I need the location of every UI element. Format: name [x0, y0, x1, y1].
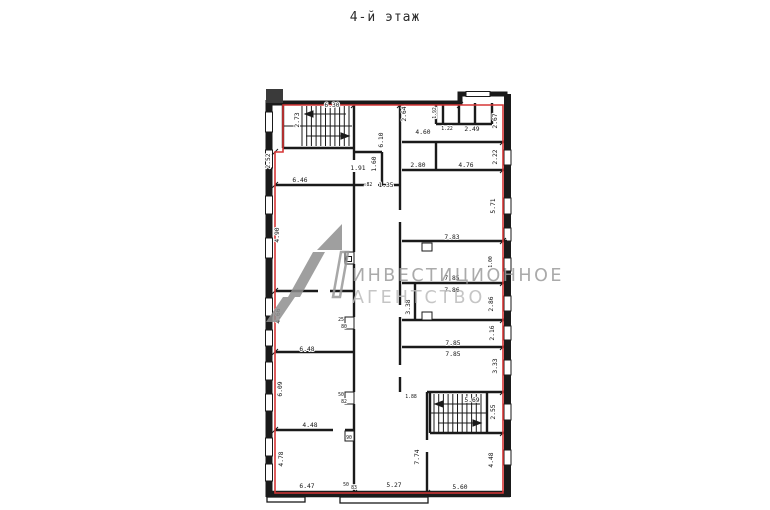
dim-label: 6.46 [292, 177, 307, 184]
window [266, 196, 273, 214]
window [266, 298, 273, 316]
dim-label: 5.27 [386, 482, 401, 489]
window [266, 464, 273, 481]
dim-label: 1.92 [432, 107, 438, 119]
window [504, 296, 511, 311]
dim-label: 7.83 [444, 234, 459, 241]
window [504, 326, 511, 340]
dim-label: 6.09 [277, 381, 284, 396]
dim-label: 2.80 [410, 162, 425, 169]
dim-label: .82 [364, 182, 373, 188]
window [266, 238, 273, 258]
dim-label: 4.48 [302, 422, 317, 429]
stair-arrow-down-icon [341, 133, 349, 139]
dim-label: 1.91 [350, 165, 365, 172]
dim-label: 5.69 [464, 397, 479, 404]
dim-label: 6.48 [299, 346, 314, 353]
dim-label: 4.48 [488, 452, 495, 467]
dim-label: 4.60 [415, 129, 430, 136]
dim-label: 80 [341, 324, 347, 330]
dim-label: 2.64 [401, 106, 408, 121]
dim-label: 7.85 [445, 351, 460, 358]
dim-label: 2.73 [294, 112, 301, 127]
dim-label: 6.10 [378, 132, 385, 147]
watermark-line1: ИНВЕСТИЦИОННОЕ [352, 266, 564, 286]
dim-label: 2.67 [492, 113, 499, 128]
window [504, 450, 511, 465]
watermark-line2: АГЕНТСТВО [352, 288, 485, 308]
window [266, 330, 273, 346]
window [504, 150, 511, 165]
dim-label: 2.16 [489, 325, 496, 340]
dim-label: 4.76 [458, 162, 473, 169]
porch-bottom [340, 497, 428, 503]
window [504, 404, 511, 420]
dim-label: 25 [338, 317, 344, 323]
window [266, 112, 273, 132]
window [266, 438, 273, 456]
dim-label: 2.49 [464, 126, 479, 133]
dim-label: 50 [343, 482, 349, 488]
floor-plan-drawing: 6.30 2.73 2.52 6.10 1.91 1.60 .82 1.35 6… [0, 0, 770, 510]
dim-label: 7.85 [445, 340, 460, 347]
dim-label: 90 [346, 435, 352, 441]
dim-label: 83 [351, 485, 357, 491]
dim-label: 2.52 [265, 153, 272, 168]
window [504, 360, 511, 375]
dim-label: 82 [341, 399, 347, 405]
door-mark [422, 312, 432, 320]
dim-label: 1.22 [441, 126, 453, 132]
window [266, 362, 273, 380]
wall-pilaster-block [266, 89, 283, 103]
dim-label: 1.60 [371, 156, 378, 171]
dim-label: 5.60 [452, 484, 467, 491]
stair-arrow-down-icon [473, 420, 481, 426]
dim-label: 6.30 [324, 102, 339, 109]
dim-label: 4.90 [274, 227, 281, 242]
porch-bottom-left [267, 497, 305, 502]
dim-label: 5.71 [490, 198, 497, 213]
dim-label: 2.22 [492, 149, 499, 164]
dim-label: 7.74 [414, 449, 421, 464]
watermark: ИНВЕСТИЦИОННОЕ АГЕНТСТВО [266, 224, 564, 322]
dim-label: 3.33 [492, 358, 499, 373]
dim-label: 1.88 [405, 394, 417, 400]
logo-triangle-top [317, 224, 342, 250]
dim-label: 2.55 [490, 404, 497, 419]
floor-plan-page: 4-й этаж [0, 0, 770, 510]
window [466, 92, 490, 97]
window [504, 198, 511, 214]
dim-label: 6.47 [299, 483, 314, 490]
window [266, 394, 273, 411]
dim-label: 4.78 [278, 451, 285, 466]
dim-label: 50 [338, 392, 344, 398]
dim-label: 1.35 [378, 182, 393, 189]
dim-label: 2.86 [488, 296, 495, 311]
door-mark [422, 243, 432, 251]
